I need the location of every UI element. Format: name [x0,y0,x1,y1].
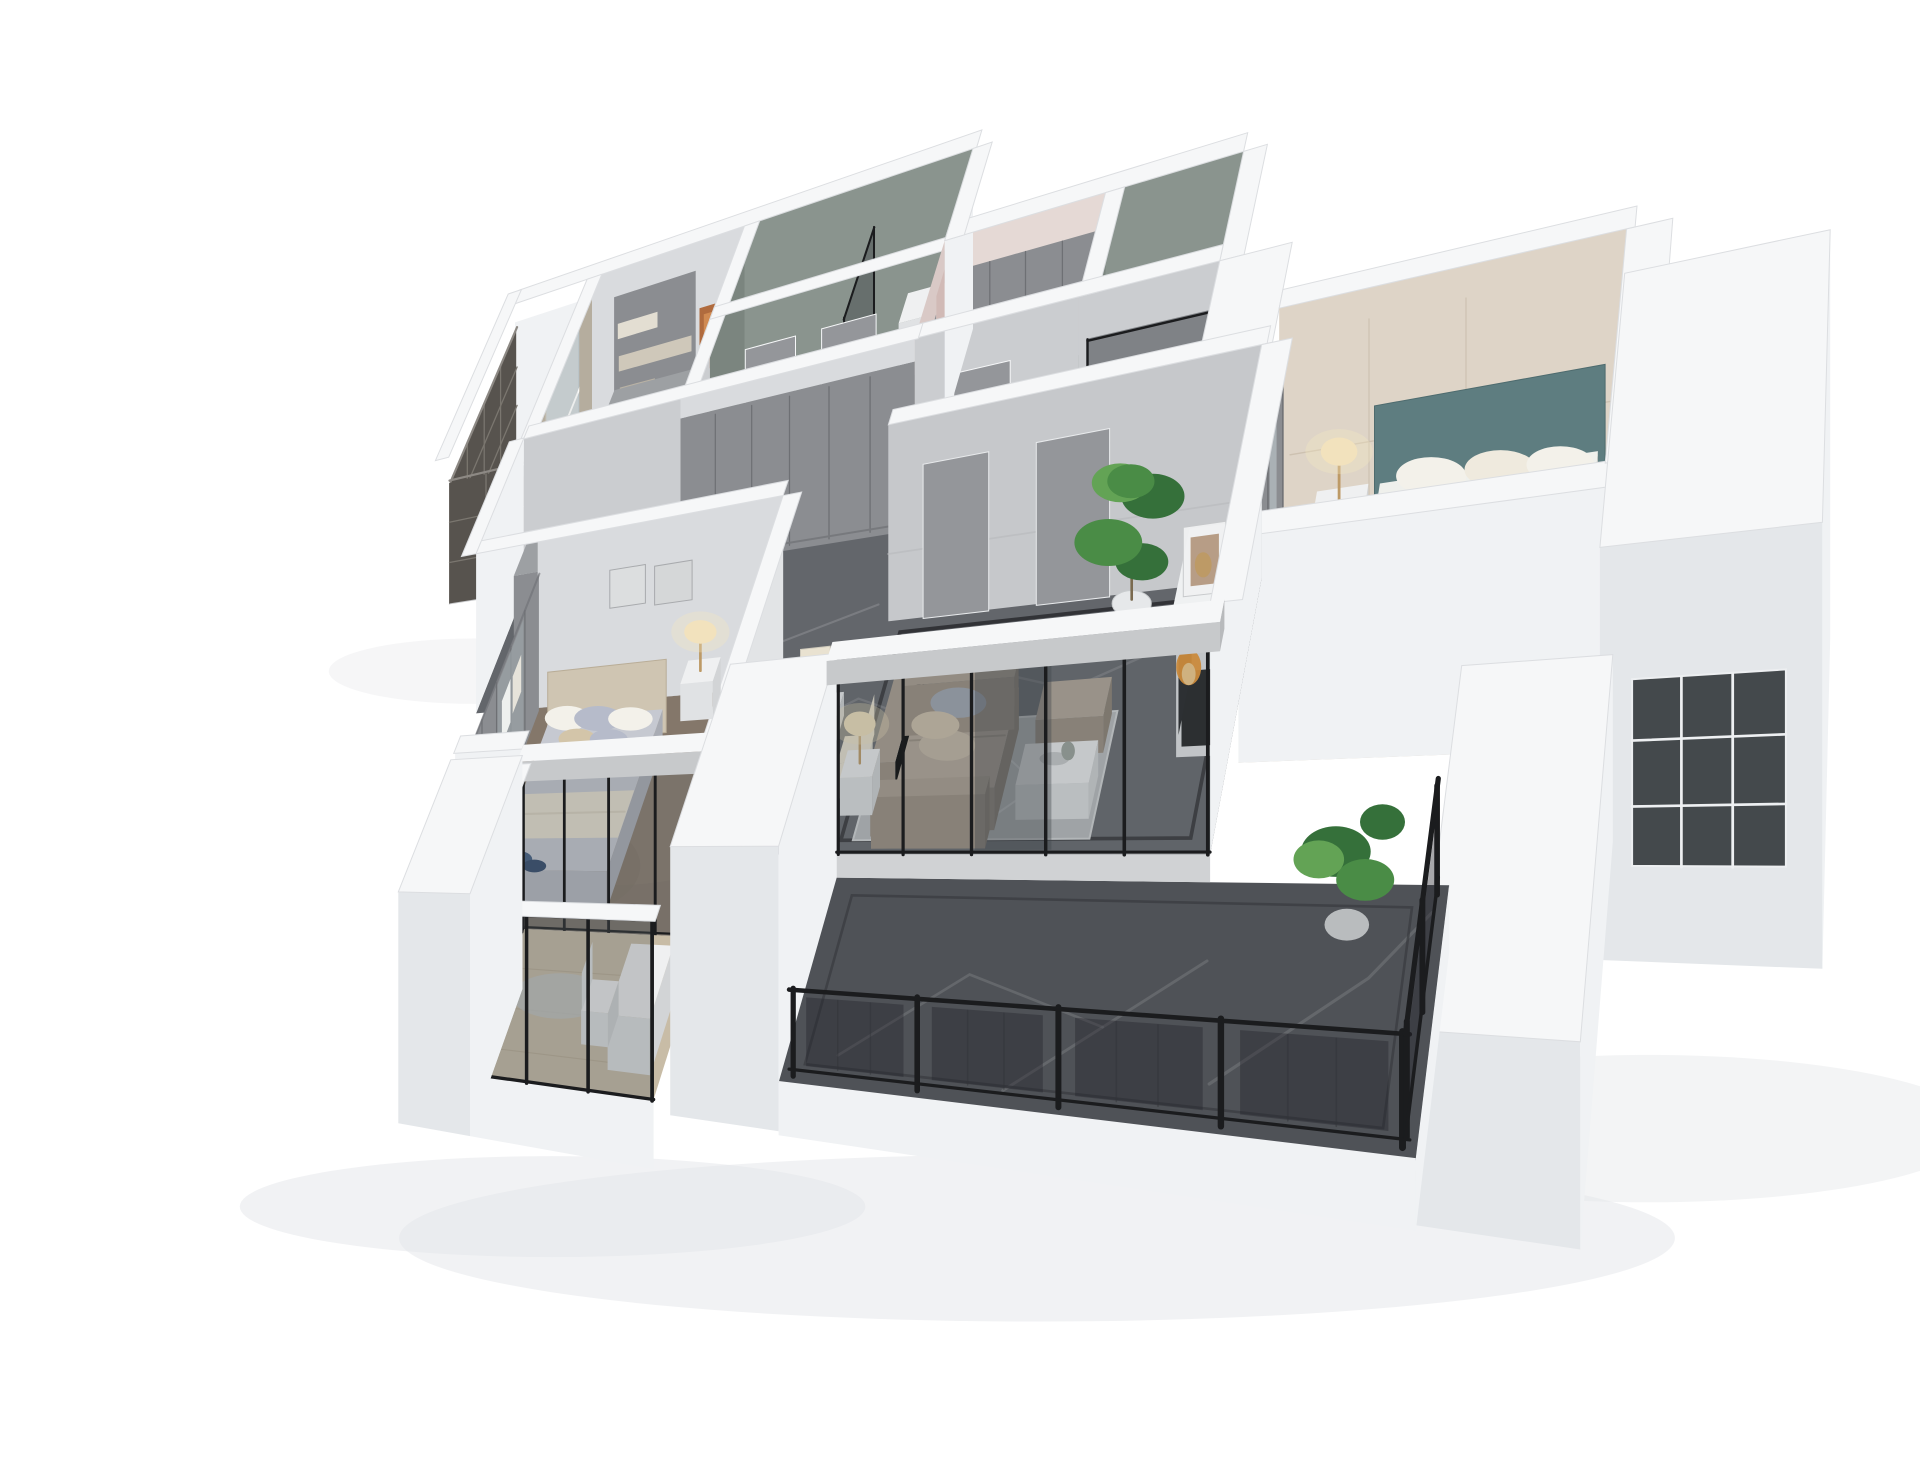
living-door-2 [1036,429,1109,606]
master-nightstand-front [680,681,713,721]
white-annex-west-front [398,892,470,1136]
white-parapet-block-front [1416,1030,1581,1249]
mantel-deco [1195,552,1212,577]
scene-root [240,130,1920,1322]
railing-mesh-panel [806,997,903,1077]
render-canvas [0,0,1920,1468]
white-block-south-front [670,846,778,1131]
monstera-leaf [1074,519,1142,566]
master-pillow [608,707,653,730]
railing-mesh-panel [1075,1018,1203,1111]
monstera-leaf [1107,464,1154,498]
master-wall-art-2 [655,560,693,605]
living-glazing-open-pane [975,659,1051,850]
railing-mesh-panel [932,1007,1043,1093]
master-wall-art-1 [610,565,646,609]
living-door-1 [923,452,989,619]
bedroom2-lamp-shade [1321,438,1358,466]
balcony-step-edge [837,853,1210,882]
balcony-plant-leaf [1294,840,1345,878]
railing-mesh-panel [1240,1030,1388,1131]
white-bay-volume-top [1600,230,1830,548]
apartment-cutaway-render [0,0,1920,1468]
bay-lattice-window [1632,669,1786,866]
balcony-plant-leaf [1360,804,1405,839]
balcony-plant-leaf [1336,859,1394,901]
master-lamp-shade [684,620,716,644]
balcony-plant-pot [1325,909,1370,941]
